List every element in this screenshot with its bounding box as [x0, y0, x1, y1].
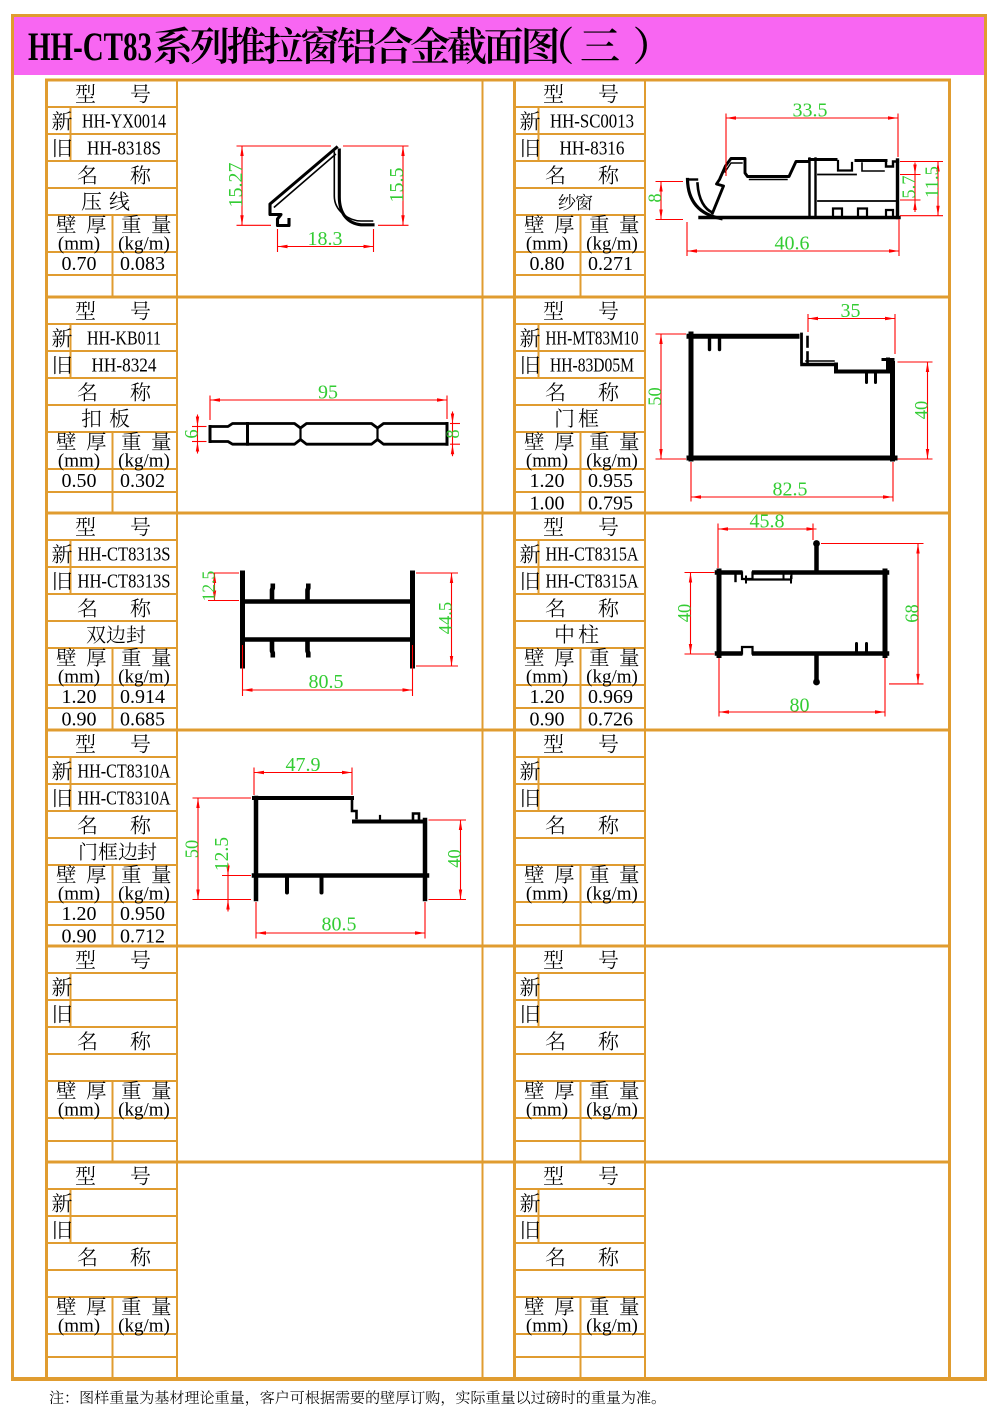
- svg-text:0.083: 0.083: [120, 253, 165, 275]
- svg-text:(mm): (mm): [58, 1316, 100, 1337]
- svg-text:15.5: 15.5: [386, 168, 408, 203]
- svg-text:0.712: 0.712: [120, 926, 165, 948]
- svg-text:68: 68: [903, 604, 923, 623]
- svg-text:0.90: 0.90: [530, 709, 565, 731]
- svg-text:0.726: 0.726: [588, 709, 633, 731]
- svg-text:0.80: 0.80: [530, 253, 565, 275]
- svg-text:HH-CT8313S: HH-CT8313S: [78, 544, 171, 566]
- svg-text:HH-CT8315A: HH-CT8315A: [546, 571, 639, 593]
- svg-text:(mm): (mm): [526, 884, 568, 905]
- svg-text:HH-SC0013: HH-SC0013: [550, 111, 634, 133]
- svg-text:(mm): (mm): [58, 451, 100, 472]
- svg-text:0.795: 0.795: [588, 493, 633, 515]
- svg-text:HH-8316: HH-8316: [560, 138, 625, 160]
- svg-text:1.20: 1.20: [62, 686, 97, 708]
- svg-text:0.685: 0.685: [120, 709, 165, 731]
- svg-text:(kg/m): (kg/m): [118, 667, 170, 688]
- svg-text:1.20: 1.20: [530, 470, 565, 492]
- svg-text:(mm): (mm): [526, 1316, 568, 1337]
- svg-text:(kg/m): (kg/m): [118, 884, 170, 905]
- svg-text:33.5: 33.5: [793, 100, 828, 122]
- svg-text:0.70: 0.70: [62, 253, 97, 275]
- svg-text:HH-MT83M10: HH-MT83M10: [546, 328, 639, 350]
- svg-text:(kg/m): (kg/m): [586, 667, 638, 688]
- svg-text:HH-YX0014: HH-YX0014: [82, 111, 166, 133]
- svg-text:(kg/m): (kg/m): [586, 234, 638, 255]
- svg-text:HH-CT8310A: HH-CT8310A: [78, 761, 171, 783]
- svg-text:HH-KB011: HH-KB011: [87, 328, 161, 350]
- svg-text:50: 50: [183, 840, 203, 859]
- svg-text:82.5: 82.5: [773, 479, 808, 501]
- svg-text:6: 6: [182, 429, 202, 438]
- svg-text:45.8: 45.8: [750, 511, 785, 533]
- svg-text:0.955: 0.955: [588, 470, 633, 492]
- svg-text:(kg/m): (kg/m): [118, 234, 170, 255]
- svg-text:(kg/m): (kg/m): [586, 1316, 638, 1337]
- svg-text:(kg/m): (kg/m): [586, 451, 638, 472]
- svg-text:(mm): (mm): [58, 884, 100, 905]
- svg-text:HH-CT8310A: HH-CT8310A: [78, 788, 171, 810]
- svg-text:40.6: 40.6: [775, 233, 810, 255]
- svg-text:(kg/m): (kg/m): [586, 884, 638, 905]
- svg-text:80.5: 80.5: [322, 914, 357, 936]
- svg-text:0.271: 0.271: [588, 253, 633, 275]
- svg-text:1.20: 1.20: [62, 903, 97, 925]
- svg-text:8: 8: [646, 193, 666, 202]
- svg-text:(kg/m): (kg/m): [118, 1316, 170, 1337]
- svg-text:0.90: 0.90: [62, 926, 97, 948]
- svg-text:40: 40: [913, 401, 933, 420]
- svg-text:11.5: 11.5: [923, 166, 943, 198]
- svg-text:(mm): (mm): [526, 234, 568, 255]
- svg-text:HH-8324: HH-8324: [92, 355, 157, 377]
- svg-text:50: 50: [646, 387, 666, 406]
- svg-text:40: 40: [446, 849, 466, 868]
- svg-text:HH-CT8315A: HH-CT8315A: [546, 544, 639, 566]
- svg-text:(mm): (mm): [526, 667, 568, 688]
- svg-text:0.302: 0.302: [120, 470, 165, 492]
- svg-text:0.50: 0.50: [62, 470, 97, 492]
- svg-text:0.969: 0.969: [588, 686, 633, 708]
- svg-text:80.5: 80.5: [309, 671, 344, 693]
- svg-text:40: 40: [676, 604, 696, 623]
- svg-text:12.5: 12.5: [212, 837, 233, 871]
- svg-text:(kg/m): (kg/m): [118, 451, 170, 472]
- svg-text:18.3: 18.3: [308, 228, 343, 250]
- svg-text:HH-CT8313S: HH-CT8313S: [78, 571, 171, 593]
- svg-text:HH-CT83: HH-CT83: [28, 24, 152, 69]
- svg-text:12.5: 12.5: [199, 570, 219, 601]
- svg-text:(kg/m): (kg/m): [586, 1100, 638, 1121]
- svg-text:(mm): (mm): [526, 451, 568, 472]
- svg-text:(mm): (mm): [58, 667, 100, 688]
- svg-text:44.5: 44.5: [437, 602, 457, 634]
- svg-text:HH-83D05M: HH-83D05M: [550, 355, 634, 377]
- svg-text:95: 95: [318, 382, 338, 404]
- svg-text:35: 35: [841, 300, 861, 322]
- svg-text:HH-8318S: HH-8318S: [87, 138, 161, 160]
- svg-text:(mm): (mm): [526, 1100, 568, 1121]
- svg-text:0.90: 0.90: [62, 709, 97, 731]
- svg-text:47.9: 47.9: [286, 754, 321, 776]
- svg-text:(mm): (mm): [58, 1100, 100, 1121]
- svg-text:80: 80: [790, 695, 810, 717]
- svg-text:(mm): (mm): [58, 234, 100, 255]
- svg-text:1.00: 1.00: [530, 493, 565, 515]
- svg-text:8: 8: [444, 429, 464, 438]
- svg-text:0.914: 0.914: [120, 686, 165, 708]
- svg-text:15.27: 15.27: [225, 163, 247, 208]
- svg-text:5.7: 5.7: [900, 175, 920, 198]
- svg-text:0.950: 0.950: [120, 903, 165, 925]
- svg-text:(kg/m): (kg/m): [118, 1100, 170, 1121]
- svg-text:1.20: 1.20: [530, 686, 565, 708]
